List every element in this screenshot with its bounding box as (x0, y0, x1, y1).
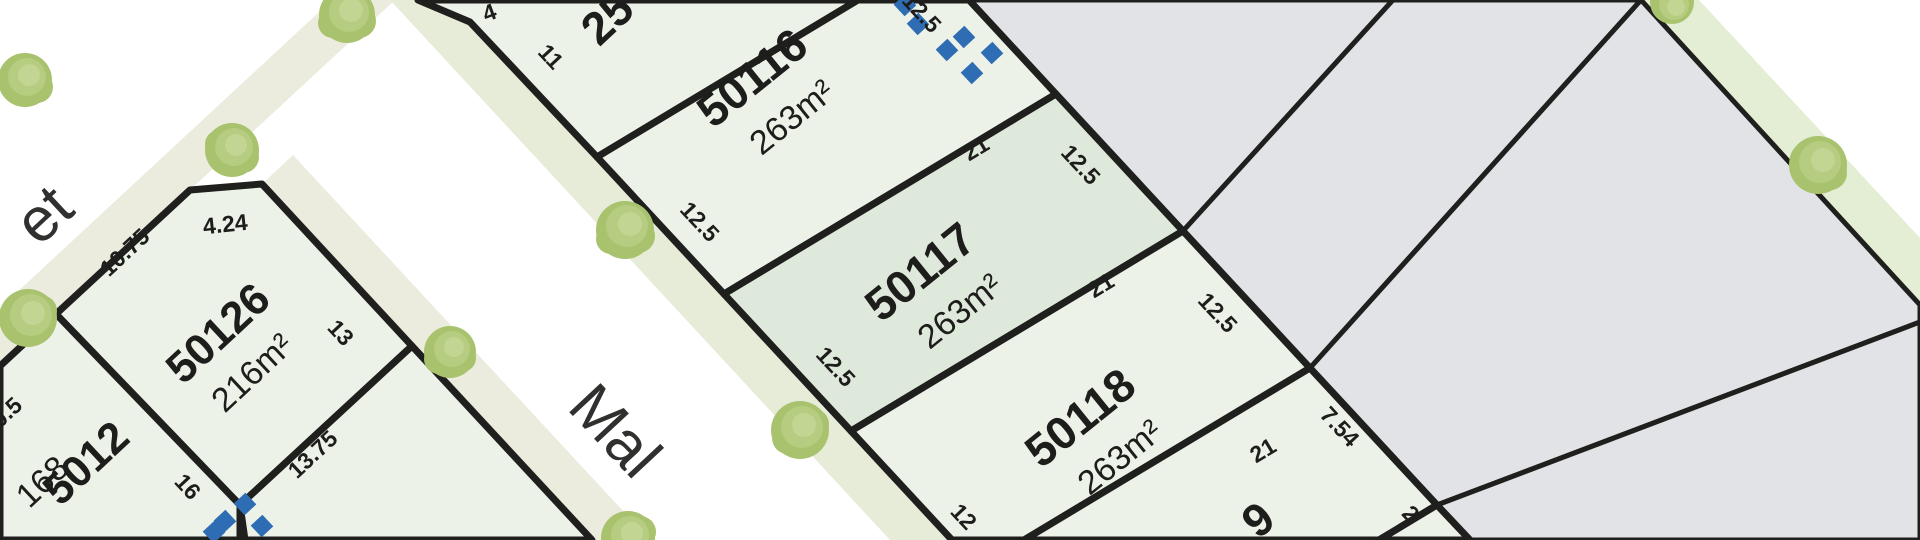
tree-icon (318, 0, 376, 43)
tree-icon (771, 401, 829, 459)
dim-chamfer-50126: 4.24 (202, 209, 249, 240)
tree-icon (424, 326, 476, 378)
tree-icon (0, 53, 53, 107)
tree-icon (205, 123, 259, 177)
tree-icon (0, 289, 57, 347)
lot-map: 25 50116 263m² 50117 263m² 50118 263m² 9… (0, 0, 1920, 540)
tree-icon (1789, 136, 1847, 194)
